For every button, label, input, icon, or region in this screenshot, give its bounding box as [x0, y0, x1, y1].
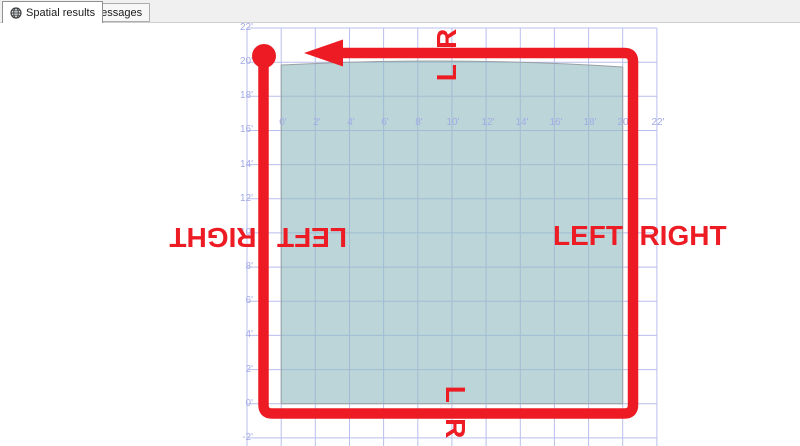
annotation-bottom-lr: L R	[441, 386, 469, 443]
start-point-marker	[252, 44, 276, 68]
annotation-left-right: RIGHT	[169, 223, 256, 251]
annotation-top-lr: L R	[433, 25, 461, 82]
tab-spatial-results-label: Spatial results	[26, 7, 95, 19]
annotation-right-left: LEFT	[553, 222, 623, 250]
annotation-left-left: LEFT	[277, 223, 347, 251]
spatial-viewport[interactable]: 22' 20' 18' 16' 14' 12' 10' 8' 6' 4' 2' …	[0, 23, 800, 446]
annotation-right-right: RIGHT	[639, 222, 726, 250]
spatial-results-pane: Spatial results Messages	[0, 0, 800, 446]
results-tab-strip: Spatial results Messages	[0, 0, 800, 23]
tab-spatial-results[interactable]: Spatial results	[2, 1, 103, 23]
globe-icon	[10, 7, 22, 19]
direction-arrowhead	[304, 40, 343, 67]
